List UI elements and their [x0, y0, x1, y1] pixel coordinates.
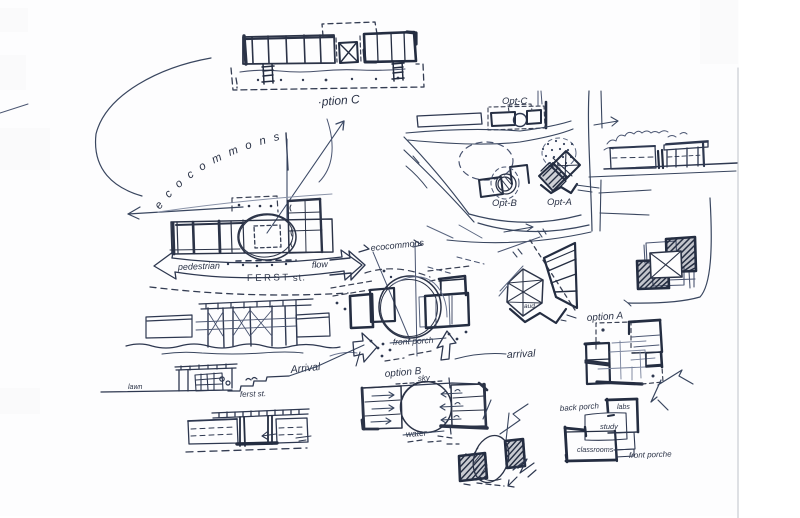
svg-text:arrival: arrival [507, 347, 537, 361]
svg-text:fl̵ow: fl̵ow [311, 259, 328, 270]
svg-text:study: study [600, 422, 619, 431]
svg-text:labs: labs [617, 404, 630, 411]
svg-text:front porche: front porche [629, 449, 673, 460]
svg-text:Opt-A: Opt-A [547, 197, 572, 208]
svg-text:lawn: lawn [128, 384, 143, 391]
svg-text:Opt-C: Opt-C [502, 96, 527, 107]
svg-text:·ption C: ·ption C [317, 92, 360, 109]
svg-text:FERST: FERST [247, 272, 291, 284]
svg-text:st.: st. [293, 272, 307, 284]
svg-text:classrooms: classrooms [577, 445, 614, 454]
svg-text:aud.: aud. [524, 303, 537, 310]
svg-text:pedestrian: pedestrian [177, 261, 220, 272]
svg-text:ferst st.: ferst st. [240, 389, 267, 399]
svg-text:Opt-B: Opt-B [492, 198, 517, 209]
